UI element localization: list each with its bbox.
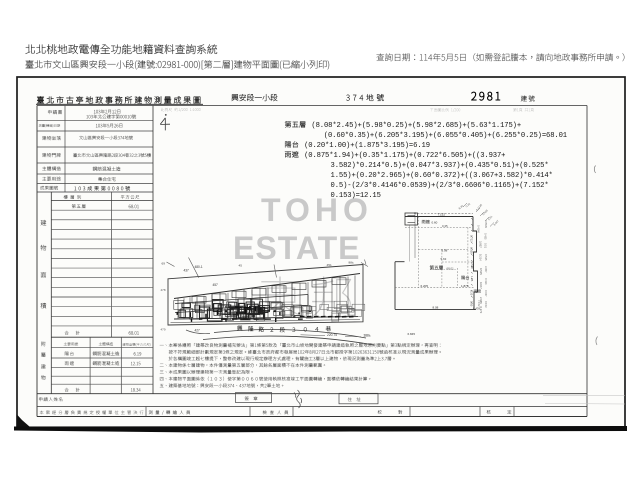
svg-text:0.047: 0.047 bbox=[479, 282, 483, 289]
svg-text:3.582: 3.582 bbox=[470, 262, 474, 269]
svg-text:3.937: 3.937 bbox=[479, 241, 483, 248]
svg-text:0.525: 0.525 bbox=[479, 268, 483, 275]
svg-text:427: 427 bbox=[195, 329, 201, 333]
svg-text:6.205: 6.205 bbox=[421, 284, 429, 288]
svg-text:388±: 388± bbox=[364, 334, 371, 338]
svg-text:0.4146: 0.4146 bbox=[477, 225, 481, 233]
svg-text:480-1: 480-1 bbox=[195, 265, 203, 269]
svg-text:45: 45 bbox=[239, 263, 243, 267]
svg-text:68.01: 68.01 bbox=[447, 266, 455, 270]
svg-text:5.98: 5.98 bbox=[442, 249, 448, 253]
svg-text:0.525: 0.525 bbox=[484, 254, 488, 261]
svg-text:8.08: 8.08 bbox=[433, 305, 439, 309]
svg-text:478: 478 bbox=[161, 288, 166, 292]
svg-text:0.153: 0.153 bbox=[484, 301, 488, 308]
svg-text:3.582)*0.214*0.5)+(0.047*3.937: 3.582)*0.214*0.5)+(0.047*3.937)+(0.435*0… bbox=[331, 162, 549, 170]
svg-text:0.414: 0.414 bbox=[484, 278, 488, 285]
svg-text:457: 457 bbox=[213, 283, 219, 287]
svg-text:0.435: 0.435 bbox=[484, 233, 488, 240]
svg-text:0.60: 0.60 bbox=[432, 221, 438, 225]
svg-text:(0.20*1.00)+(1.875*3.195)=6.19: (0.20*1.00)+(1.875*3.195)=6.19 bbox=[304, 142, 430, 150]
svg-text:(8.08*2.45)+(5.98*0.25)+(5.98*: (8.08*2.45)+(5.98*0.25)+(5.98*2.685)+(5.… bbox=[311, 122, 521, 130]
svg-text:(0.60*0.35)+(6.205*3.195)+(6.0: (0.60*0.35)+(6.205*3.195)+(6.055*0.405)+… bbox=[324, 132, 567, 140]
svg-text:5.63: 5.63 bbox=[441, 257, 447, 261]
svg-text:220.75: 220.75 bbox=[327, 333, 337, 337]
svg-text:88±: 88± bbox=[349, 261, 354, 265]
svg-text:TOHO: TOHO bbox=[261, 192, 373, 228]
svg-text:7.152: 7.152 bbox=[438, 212, 446, 216]
svg-text:0.722: 0.722 bbox=[470, 235, 474, 242]
svg-text:0.20: 0.20 bbox=[470, 290, 474, 296]
svg-text:6.845: 6.845 bbox=[408, 332, 416, 336]
svg-text:69: 69 bbox=[162, 262, 166, 266]
svg-text:1.875: 1.875 bbox=[461, 284, 469, 288]
svg-text:1.55)+(0.20*2.965)+(0.60*0.372: 1.55)+(0.20*2.965)+(0.60*0.372)+((3.067+… bbox=[331, 172, 553, 180]
svg-text:7.152: 7.152 bbox=[477, 300, 481, 307]
svg-text:0.214: 0.214 bbox=[479, 254, 483, 261]
svg-text:0.5)-(2/3*0.4146*0.0539)+(2/3*: 0.5)-(2/3*0.4146*0.0539)+(2/3*0.6606*0.1… bbox=[331, 182, 549, 190]
svg-text:437: 437 bbox=[184, 269, 190, 273]
svg-text:0.35: 0.35 bbox=[442, 224, 448, 228]
svg-text:0.0539: 0.0539 bbox=[484, 220, 488, 228]
svg-text:0.047: 0.047 bbox=[484, 290, 488, 297]
svg-text:6.505: 6.505 bbox=[470, 247, 474, 254]
svg-text:1.55: 1.55 bbox=[470, 276, 474, 282]
svg-text:0.60: 0.60 bbox=[470, 301, 474, 307]
svg-text:3.067: 3.067 bbox=[484, 266, 488, 273]
svg-text:479: 479 bbox=[161, 328, 166, 332]
svg-text:(0.875*1.94)+(0.35*1.175)+(0.7: (0.875*1.94)+(0.35*1.175)+(0.722*6.505)+… bbox=[304, 152, 505, 160]
svg-text:0.51: 0.51 bbox=[484, 243, 488, 249]
svg-text:0.372: 0.372 bbox=[479, 307, 483, 314]
svg-text:451: 451 bbox=[327, 263, 332, 267]
svg-text:ESTATE: ESTATE bbox=[233, 230, 360, 266]
